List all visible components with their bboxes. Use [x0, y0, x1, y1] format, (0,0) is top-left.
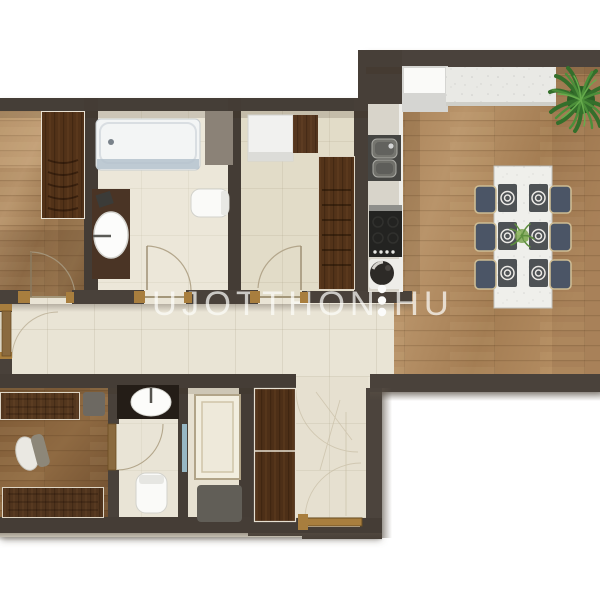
svg-text:UJOTTHON: UJOTTHON — [152, 285, 380, 323]
svg-text:HU: HU — [394, 285, 454, 323]
